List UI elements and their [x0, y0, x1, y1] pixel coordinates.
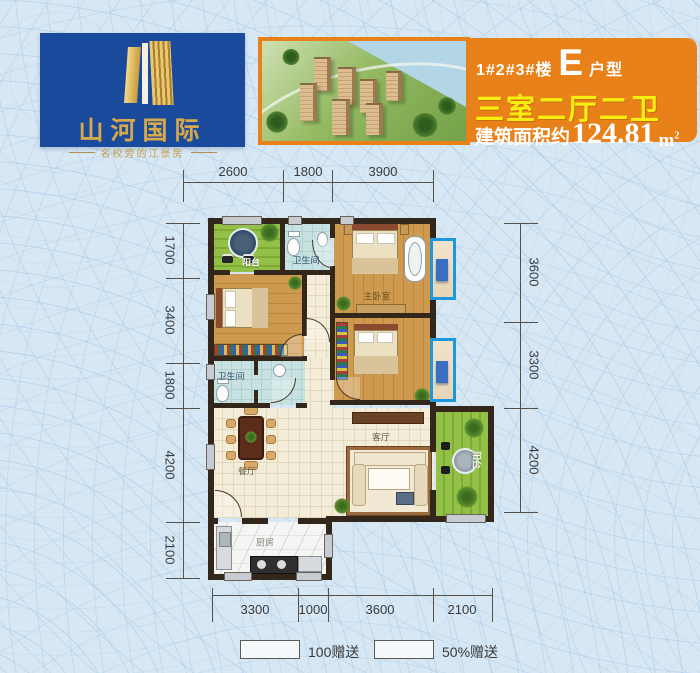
kitchen-sink — [219, 532, 231, 547]
window-gray — [288, 216, 302, 225]
dimension-tick — [433, 170, 434, 202]
wardrobe — [336, 322, 348, 380]
aerial-rendering — [258, 37, 470, 145]
curtain — [436, 259, 448, 281]
dimension-label: 3400 — [163, 298, 178, 342]
unit-letter: E — [558, 48, 583, 78]
kitchen-counter — [298, 556, 322, 572]
burner — [257, 560, 266, 569]
dimension-label: 2100 — [432, 602, 492, 617]
wall-segment — [330, 400, 436, 405]
pillow — [225, 310, 236, 327]
room-label-dining: 餐厅 — [238, 465, 256, 478]
potted-plant — [464, 418, 484, 438]
wall-segment — [280, 218, 285, 274]
window-gray — [296, 572, 322, 581]
legend-swatch-100 — [240, 640, 300, 659]
tree — [266, 111, 288, 133]
room-label-bath-top: 卫生间 — [292, 254, 319, 267]
wall-segment — [298, 518, 332, 524]
wall-segment — [430, 218, 436, 240]
wall-segment — [488, 406, 494, 518]
dimension-line — [183, 182, 433, 183]
dining-chair — [266, 435, 276, 444]
potted-plant — [334, 498, 350, 514]
wall-segment — [330, 266, 335, 318]
unit-label: 户型 — [589, 56, 623, 80]
dimension-line — [183, 223, 184, 578]
tv-console — [352, 412, 424, 424]
dimension-tick — [166, 408, 200, 409]
window-gray — [206, 364, 215, 380]
logo-title: 山河国际 — [40, 111, 245, 147]
table-centerpiece — [245, 431, 257, 443]
dining-chair — [266, 419, 276, 428]
potted-plant — [336, 296, 351, 311]
dimension-label: 3300 — [527, 343, 542, 387]
dimension-tick — [166, 578, 200, 579]
dimension-tick — [492, 588, 493, 622]
building — [366, 103, 383, 135]
pillow — [377, 233, 395, 244]
room-label-master-bedroom: 主卧室 — [363, 290, 390, 303]
pillow — [377, 332, 393, 343]
window-gray — [446, 514, 486, 523]
nightstand — [400, 224, 409, 235]
potted-plant — [288, 276, 302, 290]
flyer-page: 山河国际 名校旁的江景房 1#2#3#楼 E 户型 三室二厅二卫 建筑面积约 1… — [0, 0, 700, 673]
window-blue — [430, 238, 456, 300]
dimension-tick — [504, 408, 538, 409]
wall-segment — [242, 518, 268, 524]
dimension-label: 3900 — [353, 164, 413, 179]
building — [300, 83, 317, 121]
dimension-tick — [183, 170, 184, 202]
dimension-tick — [166, 223, 200, 224]
bed-blanket — [354, 356, 398, 374]
pillow — [356, 233, 374, 244]
wall-segment — [208, 270, 230, 275]
balcony-chair — [441, 442, 450, 450]
window-gray — [206, 294, 215, 320]
dimension-label: 1700 — [163, 228, 178, 272]
dimension-line — [212, 595, 492, 596]
bed-headboard — [352, 223, 398, 230]
bookshelf — [214, 344, 288, 356]
wall-segment — [430, 298, 436, 340]
building — [386, 71, 402, 101]
dimension-label: 3300 — [225, 602, 285, 617]
window-gray — [222, 216, 262, 225]
sink — [273, 364, 286, 377]
balcony-chair — [222, 254, 233, 263]
dining-chair — [226, 435, 236, 444]
area-value: 124.81 — [572, 123, 655, 145]
balcony-chair — [441, 466, 450, 474]
logo-panel: 山河国际 名校旁的江景房 — [40, 33, 245, 147]
dimension-label: 4200 — [163, 443, 178, 487]
window-gray — [324, 534, 333, 558]
wall-segment — [296, 403, 307, 408]
wall-segment — [254, 361, 258, 375]
bed-blanket — [352, 258, 398, 274]
wall-segment — [330, 318, 335, 380]
dimension-label: 4200 — [527, 438, 542, 482]
dimension-tick — [504, 512, 538, 513]
room-label-balcony-right: 阳台 — [471, 451, 484, 469]
room-label-kitchen: 厨房 — [256, 536, 274, 549]
dimension-tick — [504, 223, 538, 224]
logo-tagline: 名校旁的江景房 — [40, 145, 245, 160]
window-gray — [340, 216, 354, 225]
window-gray — [224, 572, 252, 581]
dining-chair — [266, 451, 276, 460]
pillow — [358, 332, 374, 343]
coffee-table — [368, 468, 410, 490]
tree — [412, 113, 438, 137]
curtain — [436, 361, 448, 383]
legend-label-50: 50%赠送 — [442, 642, 498, 662]
dining-chair — [226, 451, 236, 460]
dimension-label: 3600 — [350, 602, 410, 617]
wall-segment — [208, 403, 270, 408]
logo-tower-icon — [124, 47, 141, 103]
unit-line: 1#2#3#楼 E 户型 — [476, 48, 623, 80]
legend-swatch-50 — [374, 640, 434, 659]
dimension-label: 1000 — [283, 602, 343, 617]
burner — [277, 560, 286, 569]
dimension-line — [520, 223, 521, 512]
potted-plant — [456, 486, 478, 508]
dimension-tick — [212, 588, 213, 622]
wall-segment — [208, 518, 218, 524]
room-label-bath-mid: 卫生间 — [217, 370, 244, 383]
toilet — [216, 385, 229, 402]
tree — [282, 49, 300, 65]
pillow — [225, 291, 236, 308]
area-line: 建筑面积约 124.81 m2 — [475, 122, 679, 149]
toilet-tank — [288, 231, 300, 237]
wall-segment — [430, 490, 436, 518]
room-label-balcony-top: 阳台 — [242, 256, 260, 269]
area-unit: m2 — [659, 130, 680, 152]
unit-info-banner: 1#2#3#楼 E 户型 三室二厅二卫 建筑面积约 124.81 m2 — [462, 38, 697, 142]
sofa-arm — [352, 464, 366, 506]
logo-tower-icon — [142, 43, 148, 104]
window-gray — [206, 444, 215, 470]
wall-segment — [430, 412, 436, 452]
tree — [438, 97, 456, 115]
dimension-tick — [166, 278, 200, 279]
area-prefix: 建筑面积约 — [475, 122, 570, 149]
dimension-label: 1800 — [163, 363, 178, 407]
building-numbers: 1#2#3#楼 — [476, 56, 552, 80]
dimension-label: 1800 — [278, 164, 338, 179]
wall-segment — [330, 218, 335, 238]
building — [332, 99, 350, 135]
armchair — [396, 492, 414, 505]
dining-chair — [226, 419, 236, 428]
dimension-label: 3600 — [527, 250, 542, 294]
dimension-tick — [504, 322, 538, 323]
wall-segment — [330, 313, 436, 318]
wall-segment — [434, 406, 494, 412]
logo-tower-icon — [149, 41, 173, 105]
room-label-living: 客厅 — [372, 431, 390, 444]
dimension-label: 2600 — [203, 164, 263, 179]
window-blue — [430, 338, 456, 402]
wall-segment — [254, 270, 334, 275]
dimension-tick — [166, 522, 200, 523]
potted-plant — [260, 223, 279, 242]
sofa-arm — [414, 464, 428, 506]
legend-label-100: 100赠送 — [308, 642, 359, 662]
bathtub-basin — [408, 242, 422, 276]
dimension-label: 2100 — [163, 528, 178, 572]
bed-blanket — [252, 288, 268, 328]
